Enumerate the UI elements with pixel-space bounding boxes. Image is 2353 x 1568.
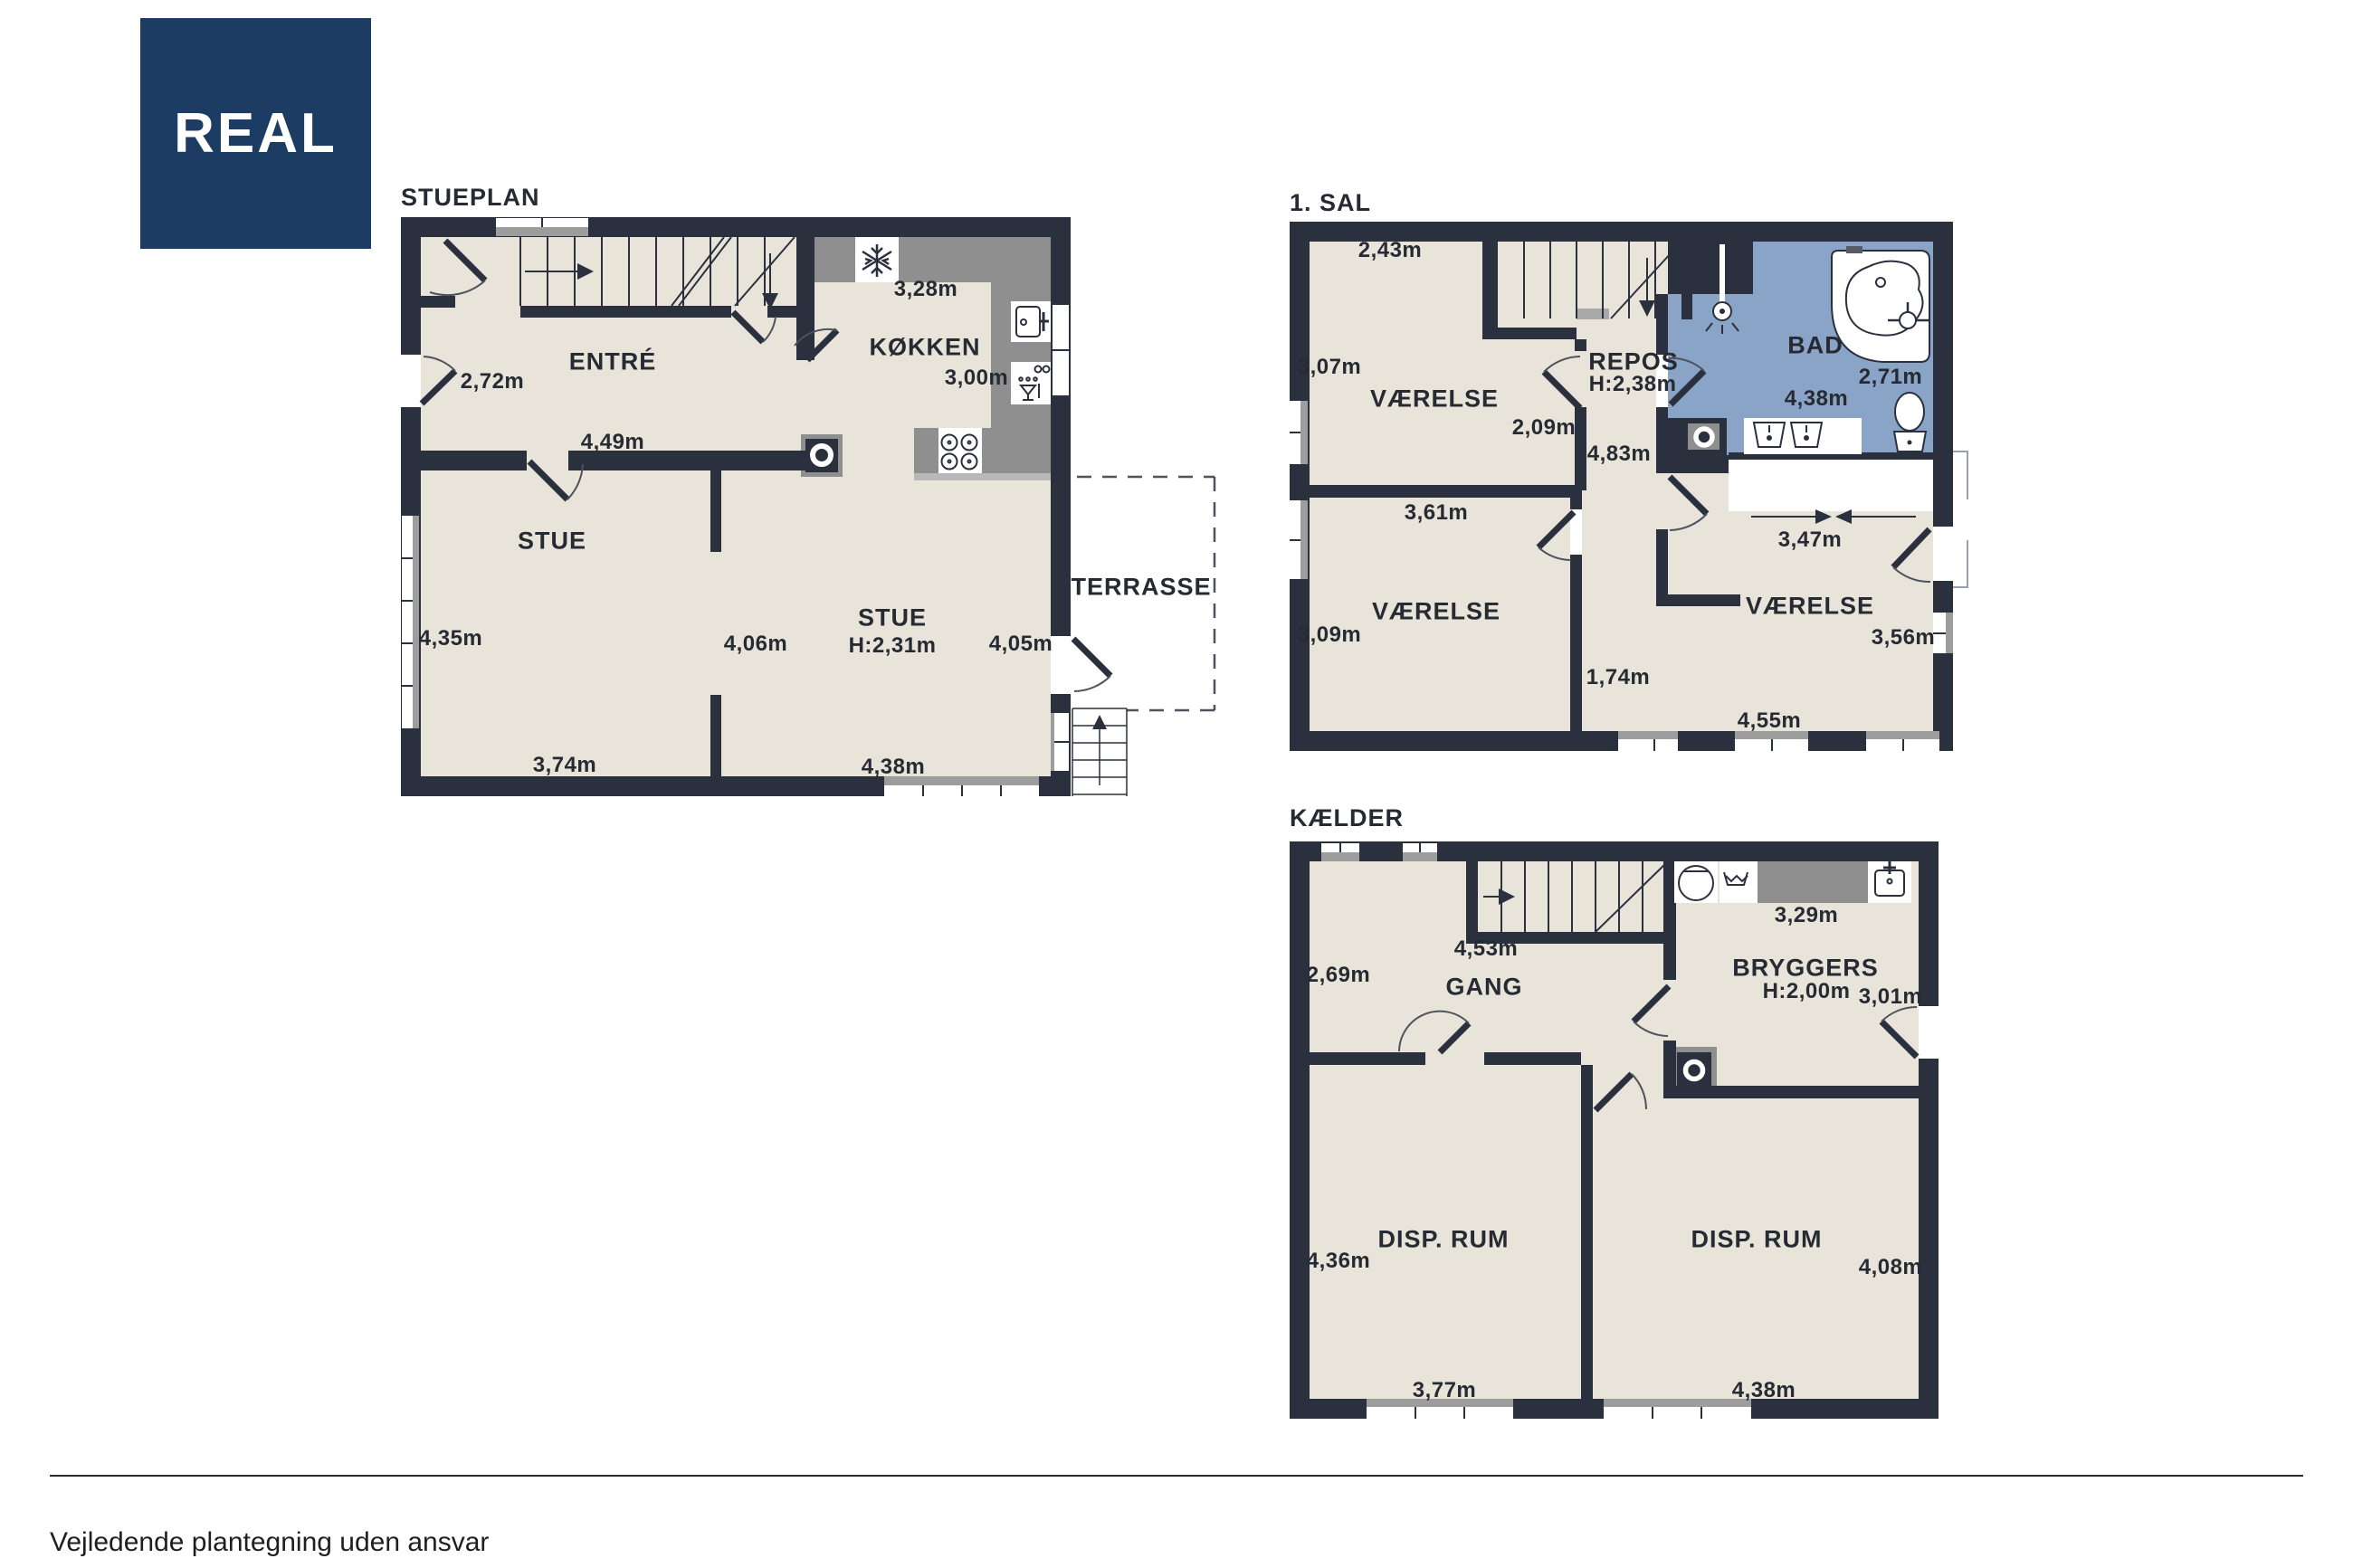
shower-icon bbox=[1706, 244, 1739, 334]
room-label-stue-left: STUE bbox=[518, 527, 586, 556]
dim: 4,55m bbox=[1738, 708, 1802, 734]
dim: 2,69m bbox=[1307, 963, 1371, 988]
door-swing bbox=[1399, 986, 1917, 1110]
room-label-gang: GANG bbox=[1446, 974, 1523, 1002]
dim: 4,36m bbox=[1307, 1249, 1371, 1274]
dim: 4,53m bbox=[1454, 936, 1519, 962]
fridge-icon bbox=[862, 244, 891, 277]
door-swing bbox=[422, 241, 1110, 691]
washing-machine-icon bbox=[1679, 866, 1713, 900]
dim: 2,43m bbox=[1358, 238, 1423, 263]
dim: 4,49m bbox=[581, 430, 645, 455]
dim: 3,74m bbox=[533, 753, 597, 778]
dim: 3,09m bbox=[1298, 622, 1362, 648]
terrace-stairs-icon bbox=[1072, 708, 1127, 796]
floorplan-page: REAL STUEPLAN 1. SAL KÆLDER bbox=[0, 0, 2353, 1568]
room-label-vaerelse-sw: VÆRELSE bbox=[1372, 598, 1500, 626]
dim: 3,01m bbox=[1859, 984, 1923, 1010]
footer-divider bbox=[50, 1475, 2303, 1477]
stairs-up-icon bbox=[520, 237, 795, 306]
dim: 3,00m bbox=[945, 366, 1009, 391]
window-mullions bbox=[1340, 843, 1701, 1419]
dim: 2,09m bbox=[1512, 415, 1577, 441]
dim: 4,38m bbox=[862, 755, 926, 780]
stairs-down-icon bbox=[1524, 242, 1681, 318]
kitchen-sink-icon bbox=[1016, 307, 1049, 337]
toilet-icon bbox=[1894, 393, 1926, 451]
double-sink-icon bbox=[1754, 423, 1822, 447]
room-label-disp-right: DISP. RUM bbox=[1691, 1226, 1822, 1254]
dim: 4,05m bbox=[989, 632, 1053, 657]
wood-stove-icon bbox=[813, 446, 831, 464]
stair-arrow-head bbox=[577, 263, 594, 280]
dim: 4,06m bbox=[724, 632, 788, 657]
wood-stove-icon bbox=[1686, 1062, 1703, 1079]
dim: H:2,31m bbox=[849, 633, 937, 659]
dim: H:2,38m bbox=[1589, 372, 1677, 397]
dim: 3,29m bbox=[1775, 903, 1839, 928]
wood-stove-icon bbox=[1696, 429, 1712, 445]
dim: 4,83m bbox=[1587, 442, 1652, 467]
dishwasher-icon bbox=[1019, 366, 1049, 401]
dim: 3,47m bbox=[1778, 527, 1843, 553]
utility-sink-icon bbox=[1875, 861, 1904, 896]
dim: 4,38m bbox=[1732, 1378, 1796, 1403]
room-label-vaerelse-e: VÆRELSE bbox=[1746, 593, 1874, 621]
room-label-disp-left: DISP. RUM bbox=[1377, 1226, 1509, 1254]
dim: 2,71m bbox=[1859, 365, 1923, 390]
linework-overlay bbox=[0, 0, 2353, 1568]
exterior-landing-marks bbox=[1953, 451, 1967, 587]
stair-arrow-head bbox=[1639, 300, 1655, 317]
dimension-arrows bbox=[1751, 509, 1916, 524]
dim: 3,61m bbox=[1405, 500, 1469, 526]
room-label-vaerelse-nw: VÆRELSE bbox=[1370, 385, 1499, 413]
dim: 4,08m bbox=[1859, 1255, 1923, 1280]
dim: 1,74m bbox=[1586, 665, 1651, 690]
dim: 3,28m bbox=[894, 277, 958, 302]
dim: H:2,00m bbox=[1763, 979, 1851, 1004]
room-label-bad: BAD bbox=[1787, 332, 1843, 360]
dim: 3,56m bbox=[1872, 625, 1936, 651]
laundry-sink-icon bbox=[1724, 872, 1748, 885]
dim: 3,77m bbox=[1413, 1378, 1477, 1403]
room-label-terrasse: TERRASSE bbox=[1071, 574, 1211, 602]
room-label-bryggers: BRYGGERS bbox=[1732, 955, 1879, 983]
cooktop-icon bbox=[942, 435, 977, 470]
room-label-kokken: KØKKEN bbox=[869, 334, 980, 362]
bathtub-icon bbox=[1832, 246, 1929, 362]
dim: 3,07m bbox=[1298, 355, 1362, 380]
dim: 4,38m bbox=[1785, 386, 1849, 412]
dim: 2,72m bbox=[461, 369, 525, 394]
room-label-entre: ENTRÉ bbox=[569, 348, 657, 376]
room-label-stue-right: STUE bbox=[858, 604, 927, 632]
stair-arrow-head bbox=[1499, 889, 1515, 905]
dim: 4,35m bbox=[419, 626, 483, 651]
footer-disclaimer: Vejledende plantegning uden ansvar bbox=[50, 1527, 489, 1558]
